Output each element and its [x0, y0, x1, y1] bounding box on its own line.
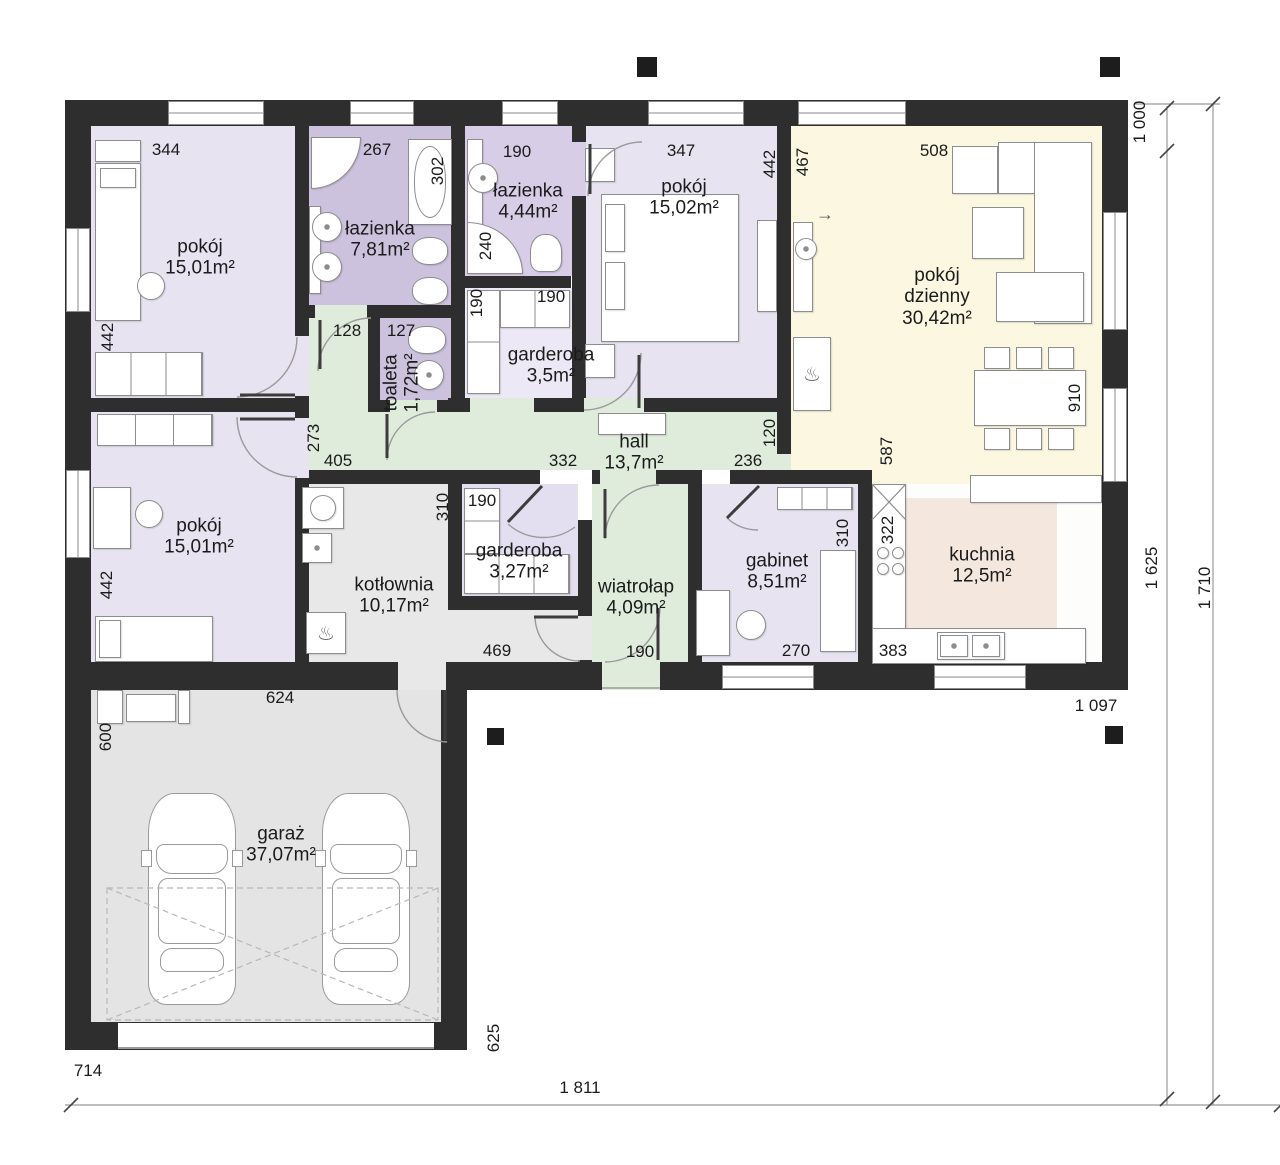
dim-1625: 1 625: [1142, 547, 1162, 590]
window-kuchnia-bottom: [934, 665, 1026, 689]
dim-1811: 1 811: [559, 1078, 600, 1098]
burner: [892, 563, 904, 575]
room-label-pokoj-dzienny: pokój dzienny 30,42m²: [887, 265, 987, 329]
room-label-garderoba-dolna: garderoba 3,27m²: [449, 541, 589, 584]
window-dzienny-top: [798, 101, 906, 125]
dimension-tick: [1160, 101, 1174, 115]
chair: [736, 610, 766, 640]
dim-625: 625: [484, 1024, 504, 1052]
window-gabinet-bottom: [722, 665, 814, 689]
dim-442-sypialnia: 442: [760, 150, 780, 178]
wall-toaleta-stub-b: [437, 400, 451, 412]
burner: [892, 547, 904, 559]
dim-270: 270: [782, 641, 810, 661]
dim-190-garderoba-prawa: 190: [537, 287, 565, 307]
dim-508: 508: [920, 141, 948, 161]
dim-600: 600: [96, 723, 116, 751]
column-marker: [1100, 57, 1120, 77]
opening-sypialnia: [584, 398, 644, 412]
dining-chair: [1016, 428, 1042, 450]
lawn-mower-handle: [178, 690, 190, 724]
tv-sideboard: [793, 222, 813, 312]
entry-arrow-icon: →: [816, 204, 834, 225]
room-area: 13,7m²: [579, 453, 689, 474]
room-area: 12,5m²: [922, 566, 1042, 587]
room-name: toaleta: [381, 328, 402, 438]
opening-lazienka-duza: [315, 305, 367, 318]
room-area: 8,51m²: [717, 572, 837, 593]
car-roof: [332, 878, 400, 944]
floor-kotlownia-b: [448, 610, 578, 662]
floor-wiatrolap: [592, 484, 688, 662]
wall-house-garage: [91, 662, 441, 690]
burner: [877, 563, 889, 575]
wardrobe: [95, 352, 203, 396]
pillow: [605, 262, 625, 310]
room-label-garaz: garaż 37,07m²: [216, 824, 346, 867]
room-label-toaleta: toaleta 1,72m²: [381, 328, 424, 438]
car-mirror: [141, 850, 152, 867]
dim-714: 714: [74, 1061, 102, 1081]
dim-190-garderoba-lewa: 190: [467, 289, 487, 317]
opening-garaz: [398, 662, 446, 690]
dim-1710: 1 710: [1195, 567, 1215, 610]
dim-1000: 1 000: [1130, 101, 1150, 144]
room-name: łazienka: [315, 219, 445, 240]
window-dzienny-right-1: [1103, 212, 1127, 330]
room-label-lazienka-mala: łazienka 4,44m²: [468, 181, 588, 224]
column-marker: [487, 728, 504, 745]
room-area: 3,27m²: [449, 562, 589, 583]
dim-344: 344: [152, 140, 180, 160]
heater-icon: ♨: [306, 612, 346, 654]
room-area: 10,17m²: [324, 596, 464, 617]
dim-469: 469: [483, 641, 511, 661]
dim-127: 127: [387, 321, 415, 341]
opening-garderoba-gorna: [470, 398, 534, 412]
room-area: 15,01m²: [135, 258, 265, 279]
sink-basin: [940, 635, 968, 657]
room-label-pokoj-tl: pokój 15,01m²: [135, 237, 265, 280]
room-label-sypialnia: pokój 15,02m²: [619, 177, 749, 220]
dining-chair: [1048, 428, 1074, 450]
opening-pokoj-tl: [295, 336, 309, 396]
dim-190-lazienka: 190: [503, 142, 531, 162]
wall-w4: [368, 318, 380, 412]
dim-310-kotlownia: 310: [433, 493, 453, 521]
room-area: 37,07m²: [216, 845, 346, 866]
wall-lamp-symbol: [795, 238, 817, 260]
wall-garage-right: [441, 688, 467, 1050]
lawn-mower-body: [126, 694, 176, 722]
window-pokoj-tl-left: [66, 228, 90, 312]
room-label-hall: hall 13,7m²: [579, 432, 689, 475]
dim-1097: 1 097: [1075, 696, 1118, 716]
kitchen-peninsula: [970, 475, 1102, 503]
room-name: pokój: [135, 237, 265, 258]
dimension-tick: [1160, 1092, 1174, 1106]
dim-332: 332: [549, 451, 577, 471]
bidet: [412, 277, 448, 305]
dimension-tick: [1274, 1098, 1280, 1112]
room-name: wiatrołap: [571, 577, 701, 598]
dim-624: 624: [266, 688, 294, 708]
room-area: 30,42m²: [887, 308, 987, 329]
room-name: garderoba: [481, 345, 621, 366]
wardrobe: [97, 414, 213, 446]
room-name: pokój: [134, 516, 264, 537]
dim-120: 120: [760, 419, 780, 447]
dim-383: 383: [879, 641, 907, 661]
fireplace-icon: ♨: [793, 337, 831, 411]
pillow: [100, 168, 136, 188]
desk: [93, 487, 131, 549]
wall-w17: [730, 470, 858, 484]
room-name: łazienka: [468, 181, 588, 202]
car-rear-window: [334, 948, 398, 972]
room-label-wiatrolap: wiatrołap 4,09m²: [571, 577, 701, 620]
room-area: 4,09m²: [571, 598, 701, 619]
floor-plan: ♨ → ♨: [0, 0, 1280, 1165]
sofa-chaise: [996, 272, 1084, 322]
room-label-gabinet: gabinet 8,51m²: [717, 551, 837, 594]
wall-w18: [858, 470, 872, 664]
room-name: gabinet: [717, 551, 837, 572]
car-mirror: [406, 850, 417, 867]
room-area: 7,81m²: [315, 240, 445, 261]
room-area: 4,44m²: [468, 202, 588, 223]
dining-chair: [1016, 347, 1042, 369]
headboard: [95, 140, 141, 162]
toilet: [530, 234, 562, 272]
room-name: kotłownia: [324, 575, 464, 596]
burner: [877, 547, 889, 559]
window-lazienka-duza-top: [350, 101, 414, 125]
room-name: kuchnia: [922, 545, 1042, 566]
pillow: [99, 620, 121, 658]
sink-basin: [972, 635, 1000, 657]
room-name: garderoba: [449, 541, 589, 562]
room-name: garaż: [216, 824, 346, 845]
dim-128: 128: [333, 321, 361, 341]
dim-405: 405: [324, 451, 352, 471]
wall-w11: [295, 470, 540, 484]
opening-kotlownia: [578, 616, 592, 660]
utility-box: [302, 533, 332, 563]
dining-chair: [984, 428, 1010, 450]
wall-w5: [451, 126, 465, 412]
shelf: [777, 487, 853, 510]
dim-347: 347: [667, 141, 695, 161]
dim-467: 467: [793, 148, 813, 176]
room-label-garderoba-gorna: garderoba 3,5m²: [481, 345, 621, 388]
room-label-kuchnia: kuchnia 12,5m²: [922, 545, 1042, 588]
garage-door-opening: [118, 1023, 434, 1049]
coffee-table: [972, 207, 1024, 259]
dim-442-pokoj-dolny: 442: [97, 571, 117, 599]
room-label-pokoj-ml: pokój 15,01m²: [134, 516, 264, 559]
dim-240: 240: [476, 232, 496, 260]
room-label-lazienka-duza: łazienka 7,81m²: [315, 219, 445, 262]
room-area: 15,01m²: [134, 537, 264, 558]
dim-587: 587: [877, 437, 897, 465]
dimension-tick: [1206, 1095, 1220, 1109]
dim-273: 273: [304, 424, 324, 452]
dim-190-wiatrolap: 190: [626, 642, 654, 662]
dim-267: 267: [363, 140, 391, 160]
dimension-tick: [64, 1098, 78, 1112]
dim-236: 236: [734, 451, 762, 471]
room-area: 3,5m²: [481, 366, 621, 387]
dim-442-pokoj-gorny: 442: [98, 323, 118, 351]
room-area: 15,02m²: [619, 198, 749, 219]
opening-wejscie: [602, 662, 660, 690]
dim-322: 322: [878, 516, 898, 544]
dim-190-garderoba-dolna: 190: [468, 491, 496, 511]
window-dzienny-right-2: [1103, 388, 1127, 482]
window-sypialnia-top: [648, 101, 744, 125]
room-label-kotlownia: kotłownia 10,17m²: [324, 575, 464, 618]
boiler-drum: [310, 495, 336, 521]
car-roof: [158, 878, 226, 944]
nightstand: [585, 148, 615, 182]
dim-310-gabinet: 310: [833, 519, 853, 547]
room-name: pokój dzienny: [887, 265, 987, 308]
wardrobe: [757, 220, 777, 312]
car-rear-window: [160, 948, 224, 972]
dimension-tick: [1206, 97, 1220, 111]
dining-chair: [1048, 347, 1074, 369]
armchair: [952, 146, 998, 194]
dim-910: 910: [1065, 384, 1085, 412]
dim-302: 302: [428, 157, 448, 185]
lawn-mower: [97, 690, 123, 724]
column-marker: [637, 57, 657, 77]
window-lazienka-mala-top: [502, 101, 558, 125]
window-pokoj-tl-top: [168, 101, 264, 125]
room-name: hall: [579, 432, 689, 453]
window-pokoj-ml-left: [66, 470, 90, 558]
wall-w2: [91, 398, 295, 412]
room-name: pokój: [619, 177, 749, 198]
dimension-tick: [1160, 144, 1174, 158]
column-marker: [1105, 726, 1123, 744]
room-area: 1,72m²: [402, 328, 423, 438]
desk: [696, 590, 730, 656]
dining-chair: [984, 347, 1010, 369]
